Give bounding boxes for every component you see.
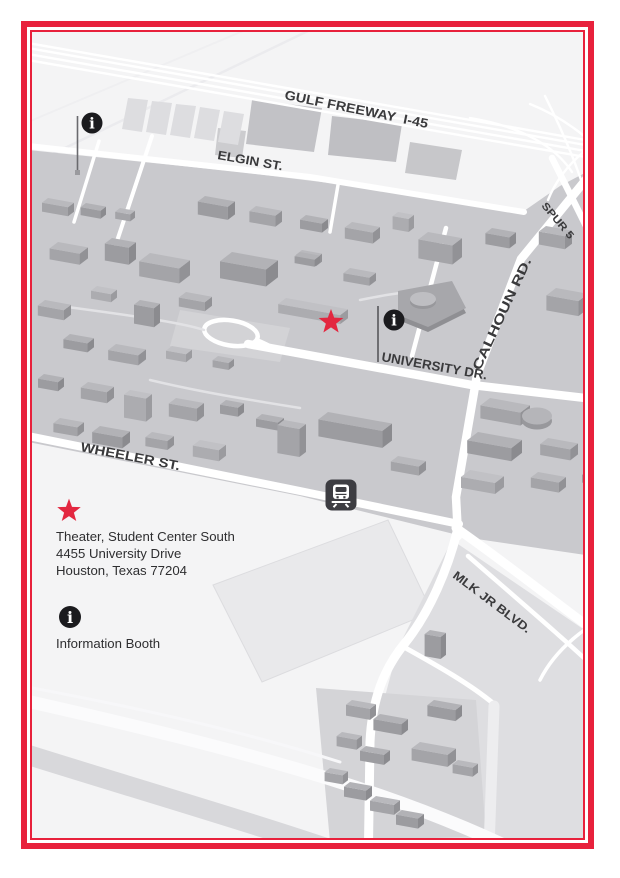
rail-station-icon (326, 480, 357, 511)
legend-theater-line3: Houston, Texas 77204 (56, 563, 187, 578)
round-pad-top (410, 292, 436, 306)
building-face (441, 633, 446, 659)
svg-text:i: i (67, 608, 73, 627)
building-face (124, 395, 146, 422)
building-face (425, 634, 441, 659)
building-face (299, 424, 306, 457)
campus-map-canvas: GULF FREEWAY I-45 ELGIN ST. SPUR 5 CALHO… (32, 32, 583, 838)
drum-top (522, 408, 552, 425)
svg-text:i: i (391, 312, 397, 330)
legend-info-label: Information Booth (56, 636, 160, 651)
legend-theater-line1: Theater, Student Center South (56, 529, 235, 544)
train-windshield (336, 487, 347, 492)
building-face (277, 425, 299, 457)
svg-text:i: i (89, 115, 95, 133)
building-face (134, 305, 154, 328)
campus-map: GULF FREEWAY I-45 ELGIN ST. SPUR 5 CALHO… (32, 32, 583, 838)
building-face (146, 394, 152, 422)
legend-theater-line2: 4455 University Drive (56, 546, 181, 561)
